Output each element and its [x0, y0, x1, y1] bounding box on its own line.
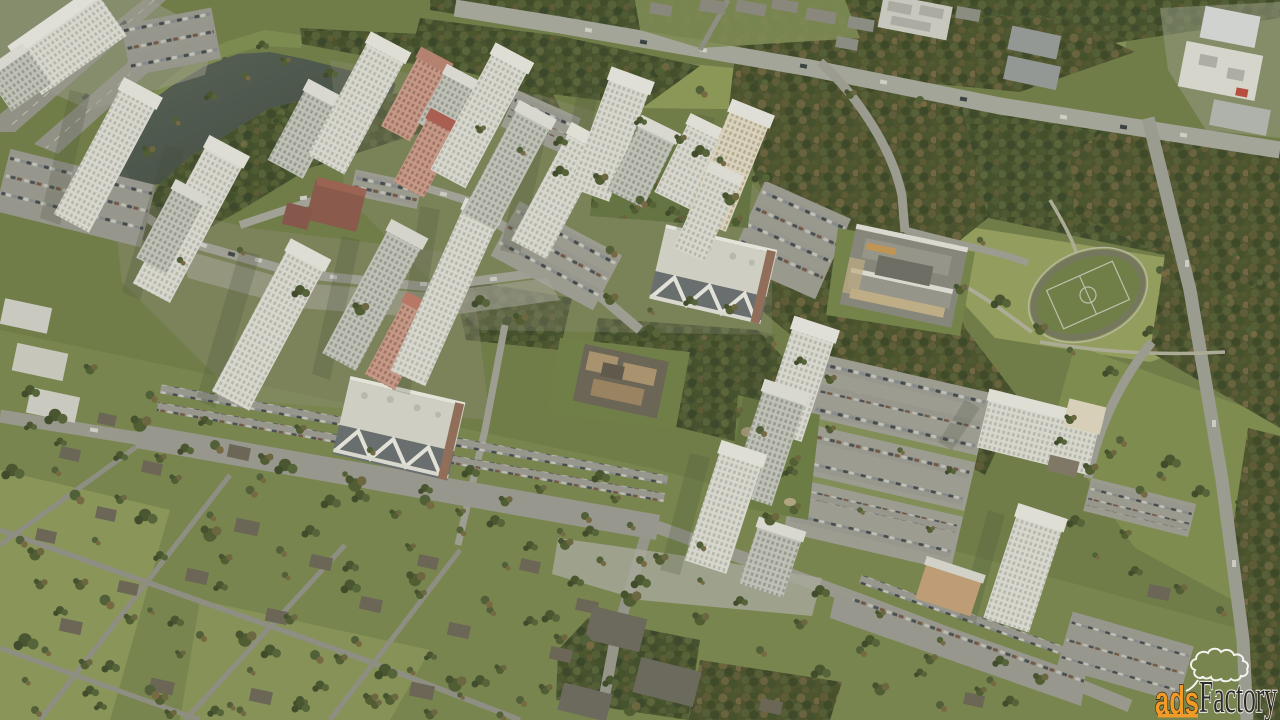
svg-text:Factory: Factory: [1199, 671, 1277, 720]
svg-text:ads: ads: [1155, 679, 1199, 720]
